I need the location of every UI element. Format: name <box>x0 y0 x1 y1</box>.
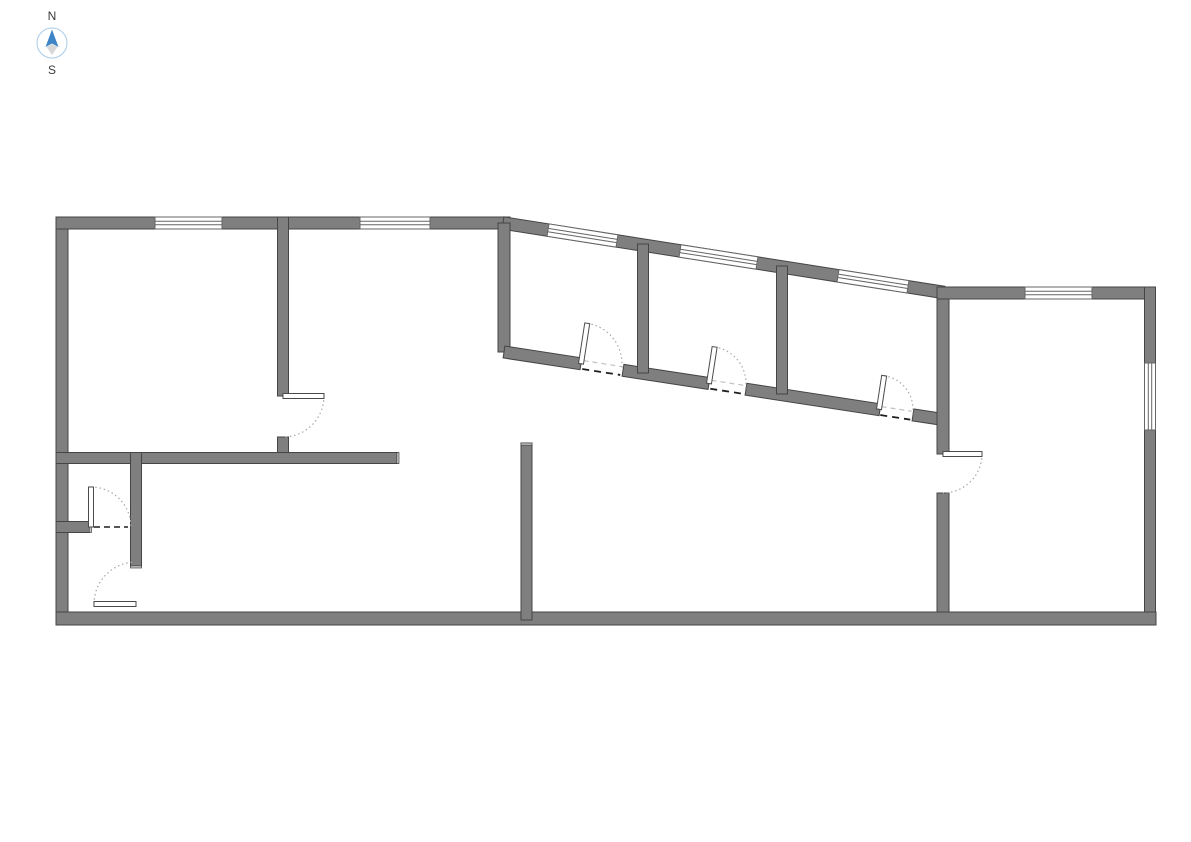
door-upper-room-2-leaf <box>707 347 718 384</box>
threshold-upper-room-3-light <box>882 407 912 412</box>
page: N S <box>0 0 1191 842</box>
wall-right-room-west-lower <box>937 493 949 624</box>
door-upper-room-1-swing-arc <box>587 323 622 370</box>
window-right-room-north <box>1025 287 1092 299</box>
wall-upper-partition-1 <box>638 244 649 373</box>
wall-upper-partition-2 <box>777 266 788 394</box>
wall-exterior-east <box>1145 287 1156 625</box>
window-east <box>1145 363 1156 430</box>
threshold-upper-room-1-light <box>584 361 622 367</box>
wall-right-room-west-upper <box>937 288 949 454</box>
wall-small-room-stub <box>56 522 90 533</box>
wall-slanted-south-a <box>503 346 582 370</box>
threshold-upper-room-3-dark <box>880 415 910 420</box>
wall-exterior-west <box>56 217 68 625</box>
threshold-upper-room-2-light <box>712 380 745 385</box>
door-small-room-inner-leaf <box>89 487 94 527</box>
wall-small-room-east <box>131 453 142 567</box>
window-north-2 <box>360 217 430 229</box>
floor-plan <box>0 0 1191 842</box>
wall-exterior-south <box>56 612 1156 625</box>
door-small-room-inner-swing-arc <box>91 487 131 527</box>
window-north-1 <box>155 217 222 229</box>
wall-west-room-east <box>278 217 289 396</box>
door-small-room-outer-swing-arc <box>94 562 135 604</box>
cap-small-room-east-bottom <box>131 566 142 568</box>
wall-slanted-south-b <box>622 364 710 389</box>
cap-mid-horizontal-end <box>397 453 399 464</box>
door-upper-room-1-leaf <box>579 323 590 364</box>
wall-center-vertical <box>521 443 532 620</box>
door-west-room-swing-arc <box>283 396 324 437</box>
threshold-upper-room-2-dark <box>710 389 743 394</box>
window-slanted-1 <box>547 224 618 247</box>
threshold-upper-room-1-dark <box>582 369 620 375</box>
door-upper-room-3-leaf <box>877 375 887 409</box>
window-slanted-3 <box>837 270 909 293</box>
wall-mid-horizontal <box>56 453 398 464</box>
wall-slanted-south-c <box>745 383 881 415</box>
cap-center-vertical-top <box>521 443 532 445</box>
door-small-room-outer-leaf <box>94 602 136 607</box>
door-west-room-leaf <box>283 394 324 399</box>
door-right-room-swing-arc <box>943 454 982 493</box>
door-upper-room-3-swing-arc <box>884 376 913 415</box>
wall-upper-hall-west <box>498 223 510 352</box>
window-slanted-2 <box>679 245 758 269</box>
door-right-room-leaf <box>943 452 982 457</box>
